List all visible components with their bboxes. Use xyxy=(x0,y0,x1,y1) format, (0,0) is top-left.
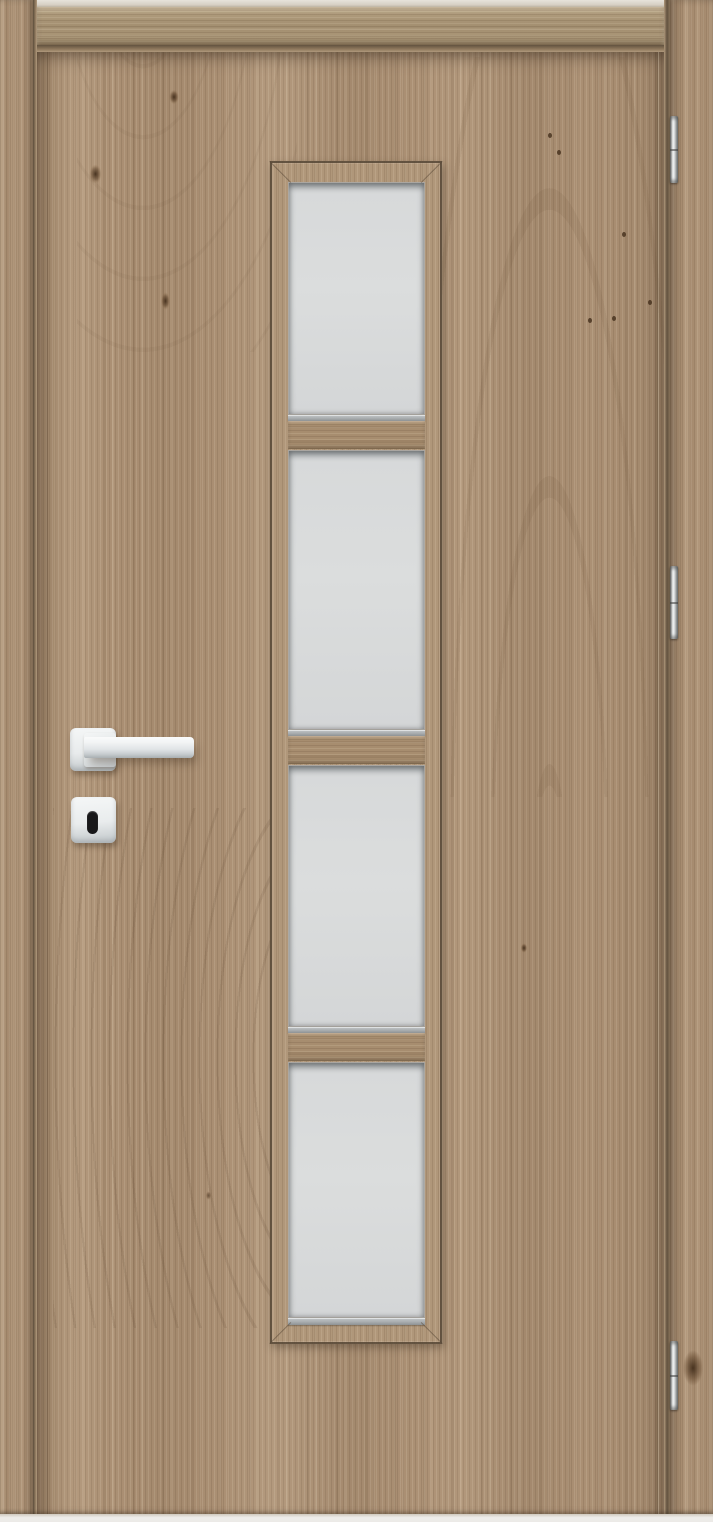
door-product-photo xyxy=(0,0,713,1522)
wood-grain-figure xyxy=(77,52,297,352)
frame-left-jamb xyxy=(0,0,33,1514)
frame-head-jamb xyxy=(37,7,664,45)
wood-knot xyxy=(205,1190,212,1201)
glazing-frame xyxy=(270,161,442,1344)
keyhole xyxy=(87,811,98,834)
wood-knot xyxy=(160,290,171,312)
door-handle-lever xyxy=(84,737,194,758)
wood-knot xyxy=(520,942,528,954)
leaf-edge-line-right xyxy=(657,52,658,1514)
door-gap-shadow-right xyxy=(664,0,670,1514)
wood-knot xyxy=(680,1345,706,1391)
hinge-bottom xyxy=(670,1341,678,1410)
wood-speck xyxy=(612,316,616,321)
door-leaf xyxy=(37,52,664,1514)
wood-knot xyxy=(88,162,103,186)
wood-speck xyxy=(622,232,626,237)
wood-knot xyxy=(168,88,180,106)
leaf-edge-line-left xyxy=(47,52,48,1514)
wood-grain-figure xyxy=(432,57,664,797)
wood-speck xyxy=(588,318,592,323)
hinge-middle xyxy=(670,566,678,639)
glazing-outline xyxy=(270,161,442,1344)
hinge-top xyxy=(670,116,678,183)
wood-grain-figure xyxy=(53,808,303,1328)
door-gap-shadow-top xyxy=(37,45,664,52)
wood-speck xyxy=(648,300,652,305)
wood-speck xyxy=(557,150,561,155)
floor-strip xyxy=(0,1514,713,1522)
frame-head-top-edge xyxy=(37,0,664,7)
frame-right-jamb xyxy=(670,0,713,1514)
wood-speck xyxy=(548,133,552,138)
